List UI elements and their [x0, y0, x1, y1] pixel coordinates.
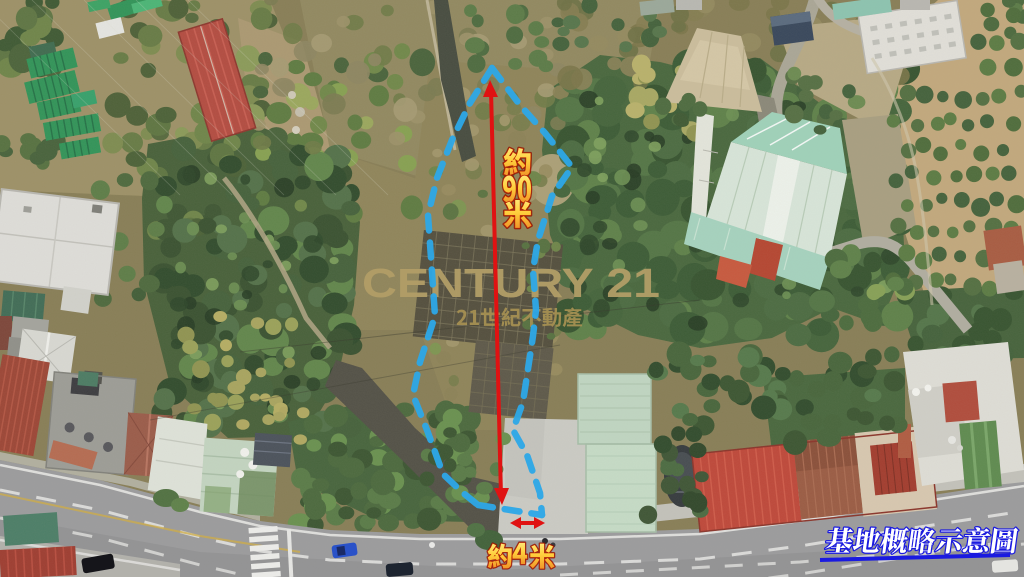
- svg-text:CENTURY 21: CENTURY 21: [362, 260, 660, 306]
